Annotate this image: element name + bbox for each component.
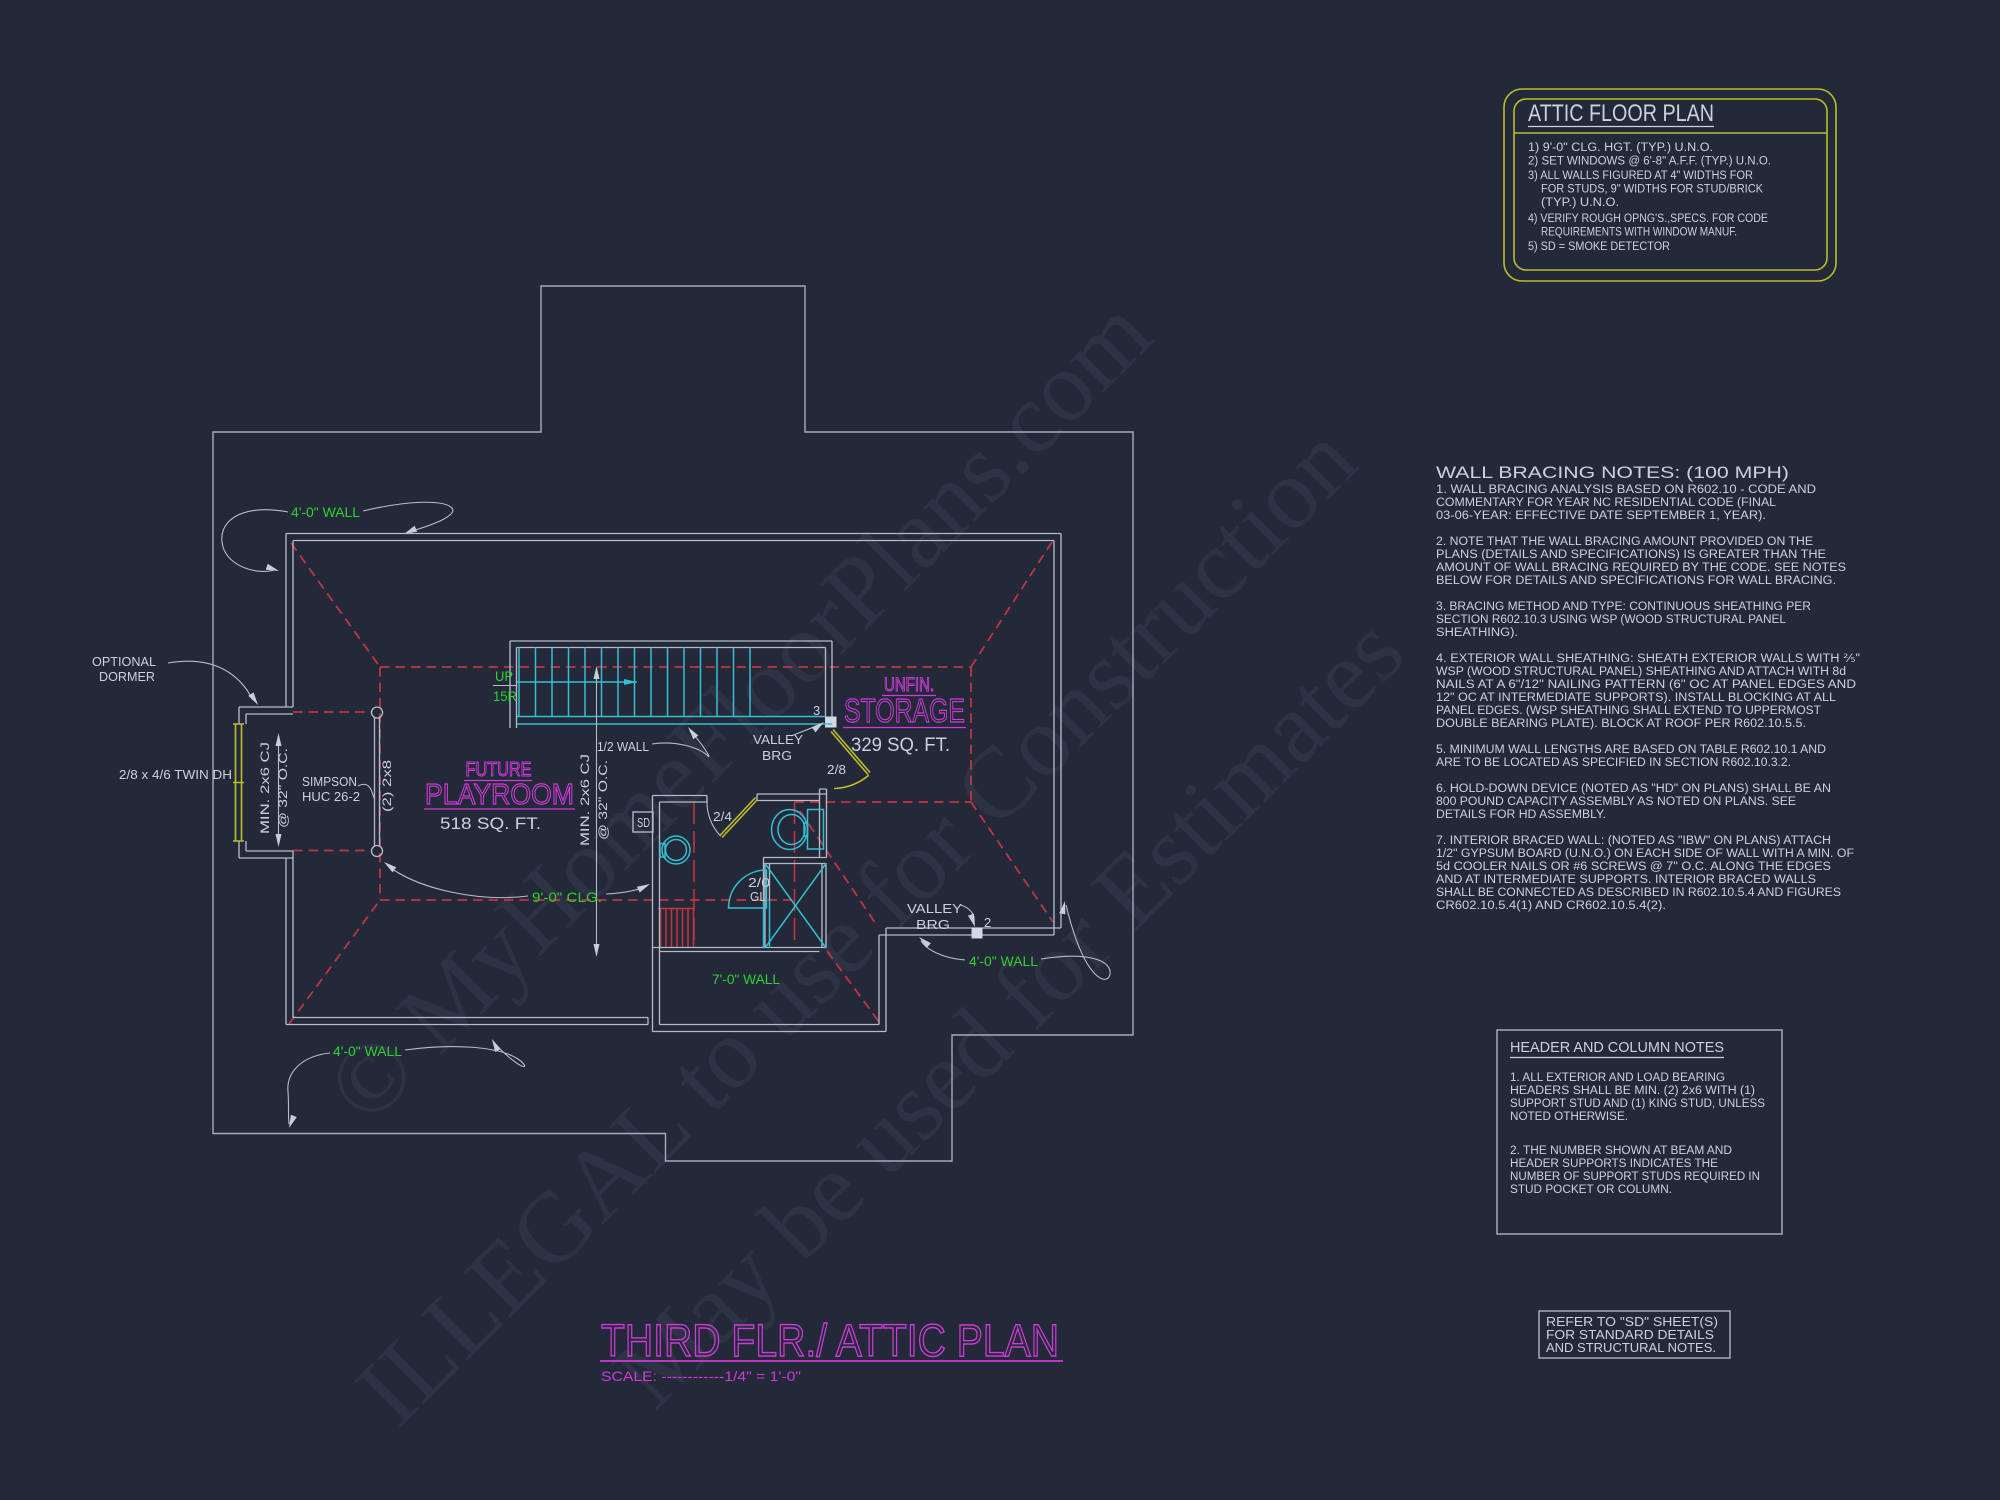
svg-text:NOTED OTHERWISE.: NOTED OTHERWISE.	[1510, 1111, 1628, 1123]
svg-text:7'-0" WALL: 7'-0" WALL	[712, 971, 780, 987]
svg-text:BRG: BRG	[762, 748, 792, 763]
svg-text:1) 9'-0" CLG. HGT. (TYP.) U.N: 1) 9'-0" CLG. HGT. (TYP.) U.N.O.	[1528, 142, 1713, 154]
svg-text:@ 32" O.C.: @ 32" O.C.	[276, 748, 290, 828]
svg-text:PLANS (DETAILS AND SPECIFICATI: PLANS (DETAILS AND SPECIFICATIONS) IS GR…	[1436, 549, 1826, 561]
svg-text:1/2 WALL: 1/2 WALL	[597, 739, 649, 754]
svg-text:STUD POCKET OR COLUMN.: STUD POCKET OR COLUMN.	[1510, 1184, 1672, 1196]
svg-text:AND AT INTERMEDIATE SUPPORTS.: AND AT INTERMEDIATE SUPPORTS. INTERIOR B…	[1436, 874, 1816, 886]
svg-text:(TYP.) U.N.O.: (TYP.) U.N.O.	[1541, 197, 1619, 209]
svg-text:MIN. 2x6 CJ: MIN. 2x6 CJ	[258, 742, 272, 834]
svg-text:REFER TO "SD" SHEET(S): REFER TO "SD" SHEET(S)	[1546, 1315, 1718, 1329]
svg-text:VALLEY: VALLEY	[907, 901, 962, 916]
svg-text:NUMBER OF SUPPORT STUDS REQUIR: NUMBER OF SUPPORT STUDS REQUIRED IN	[1510, 1171, 1760, 1183]
svg-text:ATTIC FLOOR PLAN: ATTIC FLOOR PLAN	[1528, 100, 1714, 127]
svg-text:HUC 26-2: HUC 26-2	[302, 789, 360, 804]
svg-text:SCALE: ------------1/4" = 1'-0: SCALE: ------------1/4" = 1'-0"	[601, 1368, 801, 1384]
svg-text:DETAILS FOR HD ASSEMBLY.: DETAILS FOR HD ASSEMBLY.	[1436, 809, 1606, 821]
svg-text:4. EXTERIOR WALL SHEATHING: SH: 4. EXTERIOR WALL SHEATHING: SHEATH EXTER…	[1436, 653, 1860, 665]
svg-text:PLAYROOM: PLAYROOM	[425, 779, 574, 811]
svg-text:800 POUND CAPACITY ASSEMBLY AS: 800 POUND CAPACITY ASSEMBLY AS NOTED ON …	[1436, 796, 1796, 808]
svg-text:FOR STANDARD DETAILS: FOR STANDARD DETAILS	[1546, 1328, 1714, 1342]
svg-text:1/2" GYPSUM BOARD (U.N.O.) ON: 1/2" GYPSUM BOARD (U.N.O.) ON EACH SIDE …	[1436, 848, 1854, 860]
svg-text:DOUBLE BEARING PLATE). BLOCK A: DOUBLE BEARING PLATE). BLOCK AT ROOF PER…	[1436, 718, 1806, 730]
svg-text:CR602.10.5.4(1) AND CR602.10.5: CR602.10.5.4(1) AND CR602.10.5.4(2).	[1436, 900, 1666, 912]
svg-text:HEADER SUPPORTS INDICATES THE: HEADER SUPPORTS INDICATES THE	[1510, 1158, 1718, 1170]
svg-text:2. THE NUMBER SHOWN AT BEAM AN: 2. THE NUMBER SHOWN AT BEAM AND	[1510, 1145, 1732, 1157]
svg-text:UP: UP	[495, 668, 513, 684]
svg-text:15R: 15R	[493, 688, 517, 704]
svg-text:4'-0" WALL: 4'-0" WALL	[291, 504, 360, 520]
svg-text:2. NOTE THAT THE WALL BRACING: 2. NOTE THAT THE WALL BRACING AMOUNT PRO…	[1436, 536, 1813, 548]
svg-text:5. MINIMUM WALL LENGTHS ARE BA: 5. MINIMUM WALL LENGTHS ARE BASED ON TAB…	[1436, 744, 1826, 756]
svg-text:FUTURE: FUTURE	[466, 759, 532, 781]
svg-text:2) SET WINDOWS @ 6'-8" A.F.F.: 2) SET WINDOWS @ 6'-8" A.F.F. (TYP.) U.N…	[1528, 156, 1771, 168]
svg-text:AMOUNT OF WALL BRACING REQUIRE: AMOUNT OF WALL BRACING REQUIRED BY THE C…	[1436, 562, 1846, 574]
svg-text:7. INTERIOR BRACED WALL: (NOTE: 7. INTERIOR BRACED WALL: (NOTED AS "IBW"…	[1436, 835, 1831, 847]
svg-text:OPTIONAL: OPTIONAL	[92, 654, 156, 669]
svg-text:518 SQ. FT.: 518 SQ. FT.	[440, 814, 541, 833]
svg-text:WALL BRACING NOTES: (100 MPH): WALL BRACING NOTES: (100 MPH)	[1436, 463, 1789, 482]
svg-text:4) VERIFY ROUGH OPNG'S.,SPECS.: 4) VERIFY ROUGH OPNG'S.,SPECS. FOR CODE	[1528, 213, 1768, 225]
svg-text:2: 2	[984, 915, 991, 930]
svg-text:329 SQ. FT.: 329 SQ. FT.	[851, 735, 950, 756]
svg-text:3. BRACING METHOD AND TYPE: CO: 3. BRACING METHOD AND TYPE: CONTINUOUS S…	[1436, 601, 1811, 613]
svg-text:COMMENTARY FOR YEAR NC RESIDEN: COMMENTARY FOR YEAR NC RESIDENTIAL CODE …	[1436, 497, 1777, 509]
svg-text:@ 32" O.C.: @ 32" O.C.	[596, 760, 610, 840]
svg-text:DORMER: DORMER	[99, 669, 155, 684]
svg-text:SHEATHING).: SHEATHING).	[1436, 627, 1518, 639]
svg-text:SUPPORT STUD AND (1) KING STUD: SUPPORT STUD AND (1) KING STUD, UNLESS	[1510, 1098, 1765, 1110]
svg-text:REQUIREMENTS WITH WINDOW MANUF: REQUIREMENTS WITH WINDOW MANUF.	[1541, 227, 1737, 239]
svg-text:ARE TO BE LOCATED AS SPECIFIED: ARE TO BE LOCATED AS SPECIFIED IN SECTIO…	[1436, 757, 1791, 769]
svg-text:2/4: 2/4	[713, 809, 732, 824]
svg-text:1. WALL BRACING ANALYSIS BASED: 1. WALL BRACING ANALYSIS BASED ON R602.1…	[1436, 484, 1816, 496]
svg-text:4'-0" WALL: 4'-0" WALL	[969, 953, 1038, 969]
svg-text:3: 3	[813, 703, 820, 718]
svg-text:5) SD = SMOKE DETECTOR: 5) SD = SMOKE DETECTOR	[1528, 241, 1670, 253]
svg-text:2/0: 2/0	[748, 875, 770, 890]
svg-text:SECTION R602.10.3 USING WSP (W: SECTION R602.10.3 USING WSP (WOOD STRUCT…	[1436, 614, 1787, 626]
svg-text:5d COOLER NAILS OR #6 SCREWS @: 5d COOLER NAILS OR #6 SCREWS @ 7" O.C. A…	[1436, 861, 1831, 873]
svg-text:HEADERS SHALL BE MIN. (2) 2x6: HEADERS SHALL BE MIN. (2) 2x6 WITH (1)	[1510, 1085, 1755, 1097]
svg-text:2/8 x 4/6 TWIN DH: 2/8 x 4/6 TWIN DH	[119, 767, 232, 782]
svg-text:VALLEY: VALLEY	[753, 732, 803, 747]
svg-text:BELOW FOR DETAILS AND SPECIFIC: BELOW FOR DETAILS AND SPECIFICATIONS FOR…	[1436, 575, 1836, 587]
svg-text:SIMPSON: SIMPSON	[302, 774, 357, 789]
svg-text:THIRD FLR./ ATTIC PLAN: THIRD FLR./ ATTIC PLAN	[601, 1315, 1059, 1366]
svg-text:BRG: BRG	[916, 917, 950, 932]
svg-text:3) ALL WALLS FIGURED AT 4" WID: 3) ALL WALLS FIGURED AT 4" WIDTHS FOR	[1528, 170, 1753, 182]
svg-text:GL: GL	[750, 889, 766, 904]
svg-text:WSP (WOOD STRUCTURAL PANEL) SH: WSP (WOOD STRUCTURAL PANEL) SHEATHING AN…	[1436, 666, 1846, 678]
svg-text:SD: SD	[637, 815, 650, 830]
svg-text:(2) 2x8: (2) 2x8	[380, 760, 394, 812]
svg-text:NAILS AT A 6"/12" NAILING PATT: NAILS AT A 6"/12" NAILING PATTERN (6" OC…	[1436, 679, 1856, 691]
svg-text:03-06-YEAR: EFFECTIVE DATE SEP: 03-06-YEAR: EFFECTIVE DATE SEPTEMBER 1, …	[1436, 510, 1766, 522]
svg-text:6. HOLD-DOWN DEVICE (NOTED AS: 6. HOLD-DOWN DEVICE (NOTED AS "HD" ON PL…	[1436, 783, 1831, 795]
svg-text:MIN. 2x6 CJ: MIN. 2x6 CJ	[578, 754, 592, 846]
svg-text:1. ALL EXTERIOR AND LOAD BEARI: 1. ALL EXTERIOR AND LOAD BEARING	[1510, 1072, 1725, 1084]
svg-text:12" OC AT INTERMEDIATE SUPPORT: 12" OC AT INTERMEDIATE SUPPORTS). INSTAL…	[1436, 692, 1837, 704]
svg-text:STORAGE: STORAGE	[844, 692, 965, 729]
svg-text:9'-0" CLG.: 9'-0" CLG.	[532, 889, 602, 905]
svg-text:FOR STUDS, 9" WIDTHS FOR STUD/: FOR STUDS, 9" WIDTHS FOR STUD/BRICK	[1541, 184, 1763, 196]
svg-text:AND STRUCTURAL NOTES.: AND STRUCTURAL NOTES.	[1546, 1341, 1716, 1355]
svg-text:PANEL EDGES. (WSP SHEATHING SH: PANEL EDGES. (WSP SHEATHING SHALL EXTEND…	[1436, 705, 1821, 717]
svg-text:2/8: 2/8	[827, 762, 846, 777]
svg-text:SHALL BE CONNECTED AS DESCRIBE: SHALL BE CONNECTED AS DESCRIBED IN R602.…	[1436, 887, 1841, 899]
svg-text:4'-0" WALL: 4'-0" WALL	[333, 1043, 402, 1059]
svg-text:HEADER AND COLUMN NOTES: HEADER AND COLUMN NOTES	[1510, 1039, 1724, 1056]
